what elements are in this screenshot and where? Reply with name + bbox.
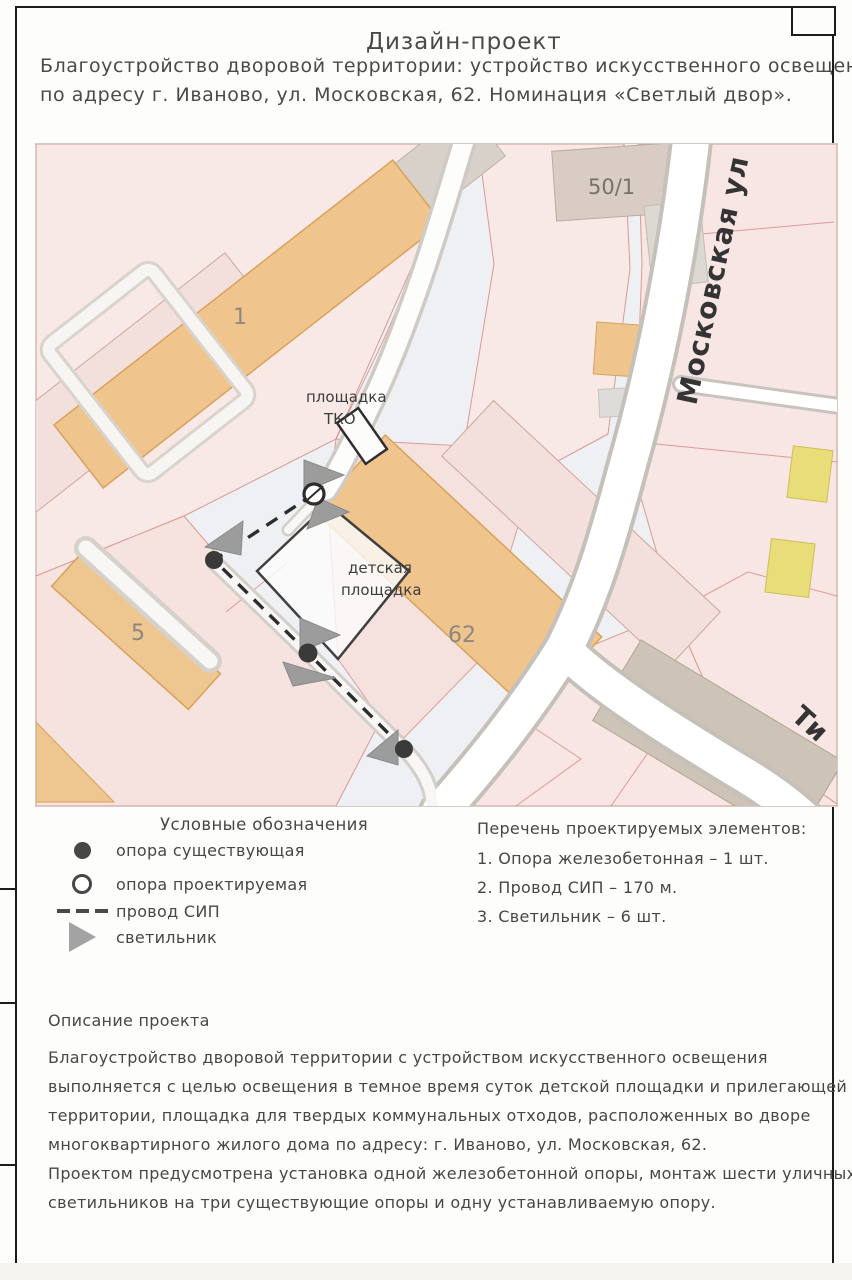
label-tko-line2: ТКО [323,410,356,428]
label-house-50-1: 50/1 [588,175,635,199]
map-svg: 1 5 62 50/1 площадка ТКО детская площадк… [36,144,837,806]
existing-pole-marker [299,644,318,663]
elements-list-item: 3. Светильник – 6 шт. [477,908,807,925]
legend-item-lamp: светильник [56,920,217,954]
frame-tick-mark [0,1164,16,1166]
legend-item-sip-wire: провод СИП [56,902,220,920]
label-house-62: 62 [448,623,476,648]
building-yellow-1 [787,446,833,502]
description-line: территории, площадка для твердых коммуна… [48,1101,818,1130]
frame-tick-mark [0,888,16,890]
label-house-1: 1 [233,305,247,330]
legend-item-planned-pole: опора проектируемая [56,874,307,894]
design-project-sheet: Дизайн-проект Благоустройство дворовой т… [0,0,852,1280]
subtitle-line-2: по адресу г. Иваново, ул. Московская, 62… [40,84,792,106]
legend-item-label: провод СИП [116,902,220,921]
subtitle-line-1: Благоустройство дворовой территории: уст… [40,55,852,77]
elements-list-item: 2. Провод СИП – 170 м. [477,879,807,896]
filled-circle-icon [74,842,91,859]
projected-elements-list: Перечень проектируемых элементов: 1. Опо… [477,820,807,937]
existing-pole-marker [395,740,413,758]
description-line: Благоустройство дворовой территории с ус… [48,1043,818,1072]
existing-pole-marker [205,551,223,569]
description-line: выполняется с целью освещения в темное в… [48,1072,818,1101]
description-line: светильников на три существующие опоры и… [48,1188,818,1217]
site-plan-map: 1 5 62 50/1 площадка ТКО детская площадк… [35,143,838,807]
label-house-5: 5 [131,621,145,646]
label-playground-line2: площадка [341,581,422,599]
label-playground-line1: детская [348,559,412,577]
page-title: Дизайн-проект [366,29,562,55]
triangle-icon [69,922,96,952]
title-block-corner-cell [791,6,836,36]
frame-tick-mark [0,1002,16,1004]
legend-item-label: опора существующая [116,841,305,860]
elements-list-title: Перечень проектируемых элементов: [477,820,807,837]
legend-title: Условные обозначения [160,815,368,834]
page-bottom-edge [0,1263,852,1280]
legend-item-label: опора проектируемая [116,875,307,894]
legend-item-existing-pole: опора существующая [56,840,305,860]
description-line: Проектом предусмотрена установка одной ж… [48,1159,818,1188]
dashed-line-icon [57,909,108,913]
project-description: Описание проекта Благоустройство дворово… [48,1012,818,1217]
description-line: многоквартирного жилого дома по адресу: … [48,1130,818,1159]
label-tko-line1: площадка [306,388,387,406]
description-title: Описание проекта [48,1012,818,1029]
legend-item-label: светильник [116,928,217,947]
building-yellow-2 [765,539,815,598]
open-circle-icon [72,874,92,894]
elements-list-item: 1. Опора железобетонная – 1 шт. [477,850,807,867]
